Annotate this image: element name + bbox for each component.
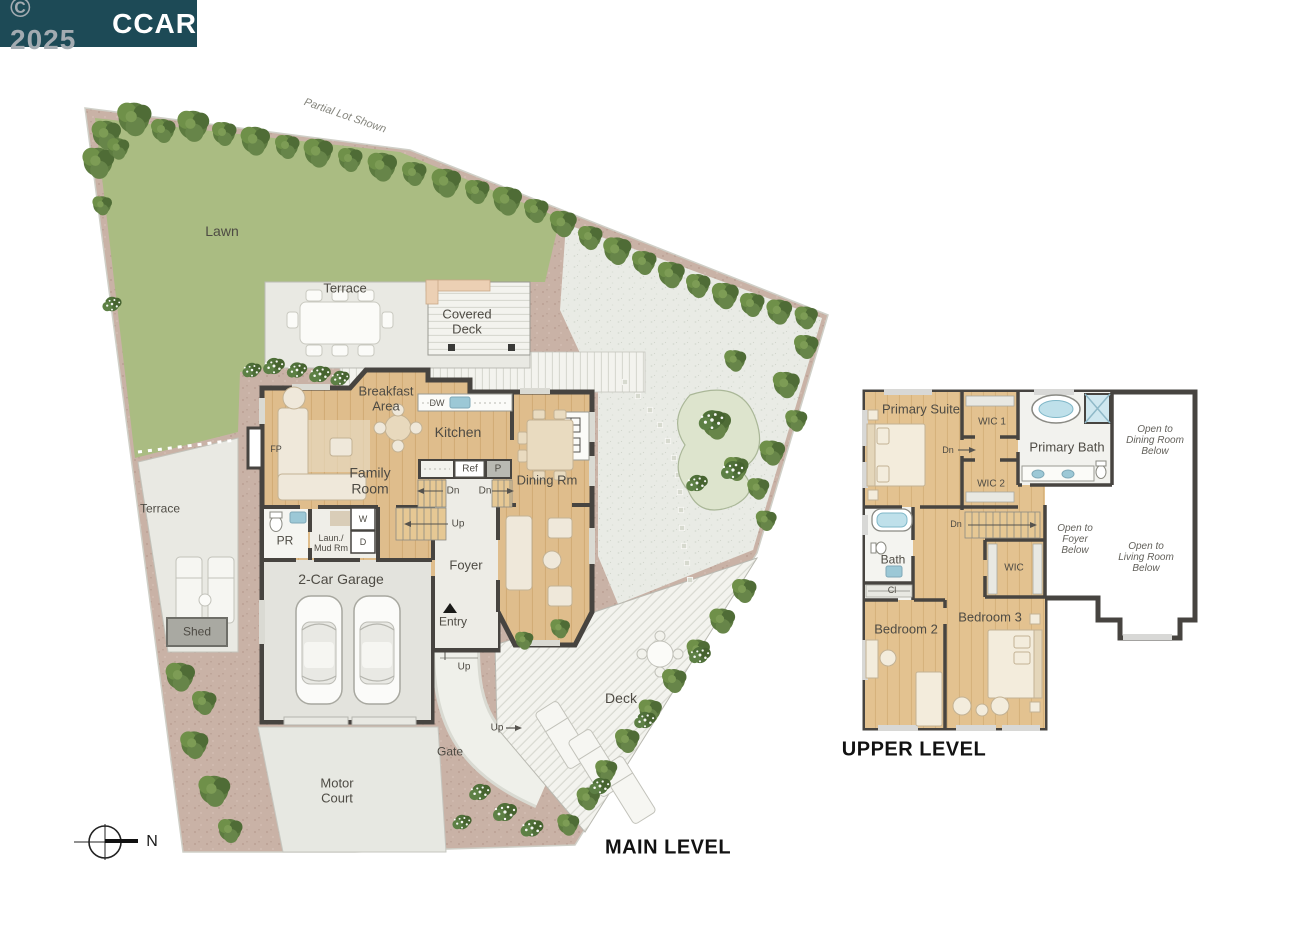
motor-court-area bbox=[258, 727, 446, 852]
floor-plan-page: © 2025 CCAR bbox=[0, 0, 1289, 938]
pantry-cab bbox=[487, 461, 510, 477]
site-plan-svg bbox=[0, 0, 1289, 938]
upper-level-plan bbox=[862, 389, 1195, 731]
refrigerator bbox=[455, 461, 484, 477]
garage-floor bbox=[264, 560, 431, 720]
compass-icon bbox=[74, 824, 138, 860]
stair-landing bbox=[446, 478, 493, 507]
main-level-plan bbox=[74, 103, 828, 860]
planting-bed bbox=[678, 390, 760, 510]
fireplace bbox=[248, 428, 262, 468]
upper-level-title: UPPER LEVEL bbox=[842, 739, 986, 762]
shed-area bbox=[167, 618, 227, 646]
main-level-title: MAIN LEVEL bbox=[605, 837, 731, 860]
